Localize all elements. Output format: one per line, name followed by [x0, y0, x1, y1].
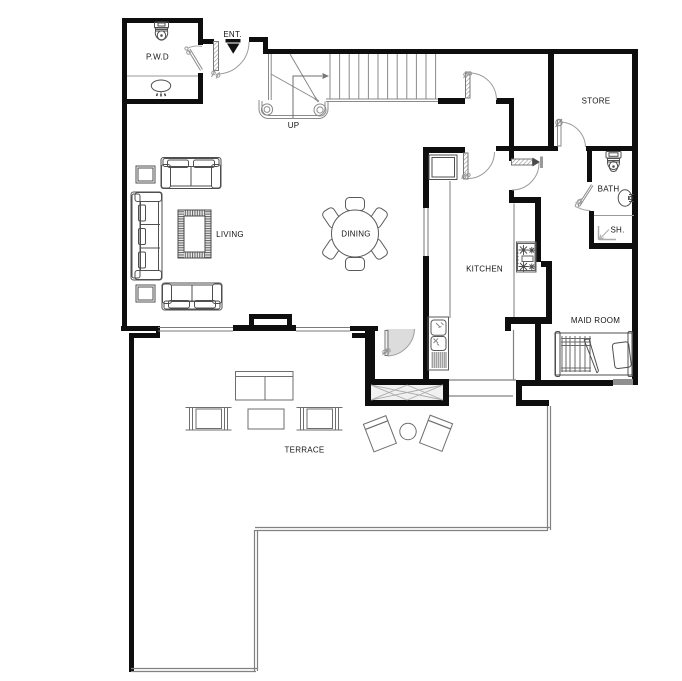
svg-text:STORE: STORE [582, 97, 611, 106]
svg-text:LIVING: LIVING [216, 230, 244, 239]
svg-text:MAID ROOM: MAID ROOM [571, 316, 620, 325]
svg-text:TERRACE: TERRACE [285, 446, 325, 455]
svg-text:KITCHEN: KITCHEN [466, 265, 503, 274]
svg-text:UP: UP [288, 121, 300, 130]
svg-text:ENT.: ENT. [223, 30, 241, 39]
svg-text:SH.: SH. [610, 226, 624, 235]
svg-text:P.W.D: P.W.D [146, 53, 169, 62]
svg-text:BATH: BATH [598, 185, 620, 194]
svg-text:DINING: DINING [341, 230, 371, 239]
